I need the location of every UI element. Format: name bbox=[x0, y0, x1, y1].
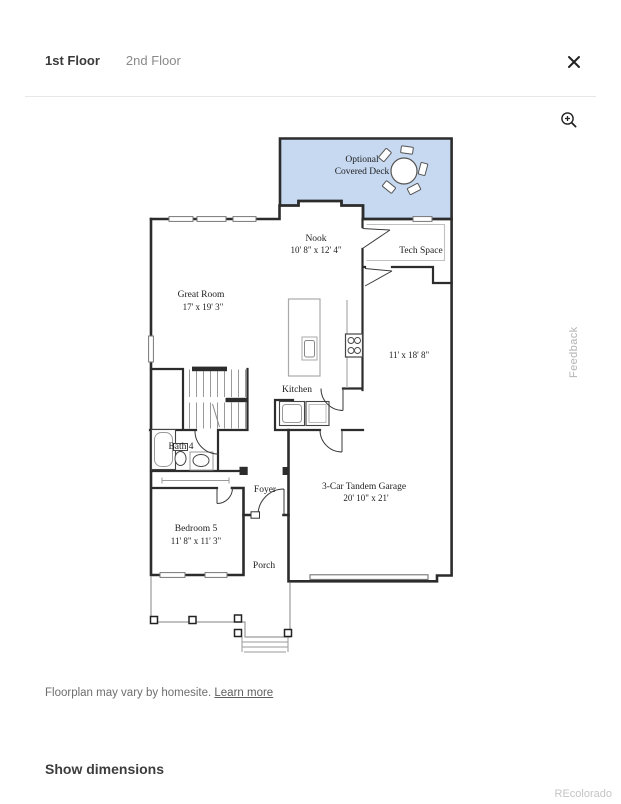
floorplan-canvas: Optional Covered Deck Nook 10' 8" x 12' … bbox=[85, 130, 470, 665]
disclaimer: Floorplan may vary by homesite. Learn mo… bbox=[45, 687, 273, 699]
deck-label-line2: Covered Deck bbox=[335, 167, 390, 177]
porch-posts bbox=[151, 615, 292, 637]
floorplan-viewer: { "header": { "tabs": [ {"label": "1st F… bbox=[0, 0, 621, 804]
garage-dims: 20' 10" x 21' bbox=[343, 493, 389, 503]
floor-tabs: 1st Floor 2nd Floor bbox=[45, 53, 181, 68]
wall-posts bbox=[240, 467, 290, 475]
stair-landing-edge bbox=[192, 367, 227, 372]
great-room-label: Great Room bbox=[178, 290, 225, 300]
tab-1st-floor[interactable]: 1st Floor bbox=[45, 53, 100, 68]
closet-rod bbox=[162, 478, 229, 484]
bedroom5-label: Bedroom 5 bbox=[175, 524, 218, 534]
close-icon bbox=[567, 55, 581, 69]
bath-sink bbox=[190, 452, 213, 470]
feedback-tab[interactable]: Feedback bbox=[568, 306, 580, 378]
close-button[interactable] bbox=[564, 52, 584, 72]
washer-dryer bbox=[280, 402, 330, 426]
stair-mid-rail bbox=[226, 398, 248, 402]
deck-area bbox=[280, 139, 452, 220]
tab-2nd-floor[interactable]: 2nd Floor bbox=[126, 53, 181, 68]
zoom-in-button[interactable] bbox=[558, 109, 580, 131]
bedroom5-dims: 11' 8" x 11' 3" bbox=[171, 536, 222, 546]
disclaimer-text: Floorplan may vary by homesite. bbox=[45, 687, 211, 699]
garage-door bbox=[310, 575, 428, 580]
header-divider bbox=[25, 96, 596, 97]
nook-dims: 10' 8" x 12' 4" bbox=[290, 245, 341, 255]
tandem-bay-dims: 11' x 18' 8" bbox=[389, 350, 430, 360]
learn-more-link[interactable]: Learn more bbox=[214, 687, 273, 699]
tech-space-label: Tech Space bbox=[399, 246, 442, 256]
kitchen-label: Kitchen bbox=[282, 385, 312, 395]
garage-label: 3-Car Tandem Garage bbox=[322, 482, 406, 492]
kitchen-island bbox=[289, 299, 321, 376]
stove bbox=[346, 334, 363, 357]
magnifier-plus-icon bbox=[560, 111, 578, 129]
front-door-threshold bbox=[251, 512, 260, 518]
show-dimensions-button[interactable]: Show dimensions bbox=[45, 761, 164, 777]
stairs bbox=[190, 367, 248, 429]
porch-label: Porch bbox=[253, 561, 275, 571]
foyer-label: Foyer bbox=[254, 485, 277, 495]
recolorado-watermark: REcolorado bbox=[555, 788, 612, 800]
bath4-label: Bath 4 bbox=[168, 442, 193, 452]
nook-label: Nook bbox=[305, 234, 326, 244]
great-room-dims: 17' x 19' 3" bbox=[183, 302, 224, 312]
floorplan-svg: Optional Covered Deck Nook 10' 8" x 12' … bbox=[85, 130, 470, 665]
porch-outline bbox=[151, 576, 290, 652]
deck-label-line1: Optional bbox=[345, 155, 379, 165]
